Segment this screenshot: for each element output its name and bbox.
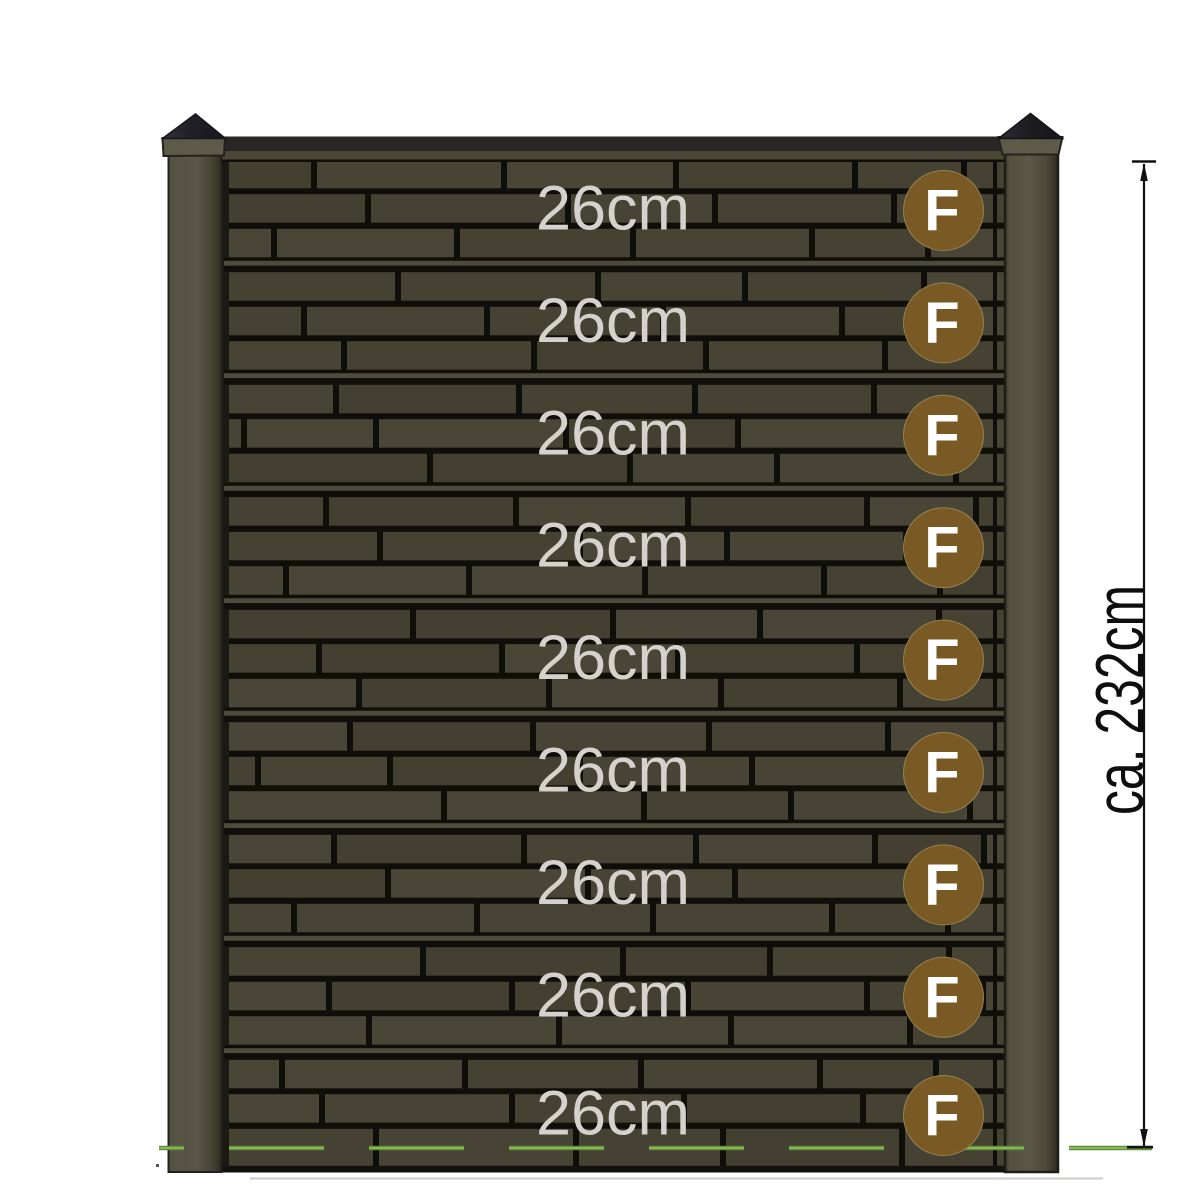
svg-text:26cm: 26cm xyxy=(536,736,690,806)
svg-text:F: F xyxy=(924,516,959,581)
svg-text:F: F xyxy=(924,291,959,356)
svg-text:F: F xyxy=(924,628,959,693)
svg-text:26cm: 26cm xyxy=(536,174,690,244)
svg-text:F: F xyxy=(924,179,959,244)
svg-text:F: F xyxy=(924,403,959,468)
svg-text:ca. 232cm: ca. 232cm xyxy=(1082,585,1158,815)
svg-text:26cm: 26cm xyxy=(536,511,690,581)
svg-text:F: F xyxy=(924,853,959,918)
svg-text:26cm: 26cm xyxy=(536,848,690,918)
svg-text:26cm: 26cm xyxy=(536,960,690,1030)
svg-text:26cm: 26cm xyxy=(536,286,690,356)
svg-text:26cm: 26cm xyxy=(536,1079,690,1149)
svg-text:F: F xyxy=(924,965,959,1030)
svg-text:26cm: 26cm xyxy=(536,398,690,468)
svg-text:F: F xyxy=(924,1084,959,1149)
svg-text:F: F xyxy=(924,741,959,806)
svg-text:26cm: 26cm xyxy=(536,623,690,693)
